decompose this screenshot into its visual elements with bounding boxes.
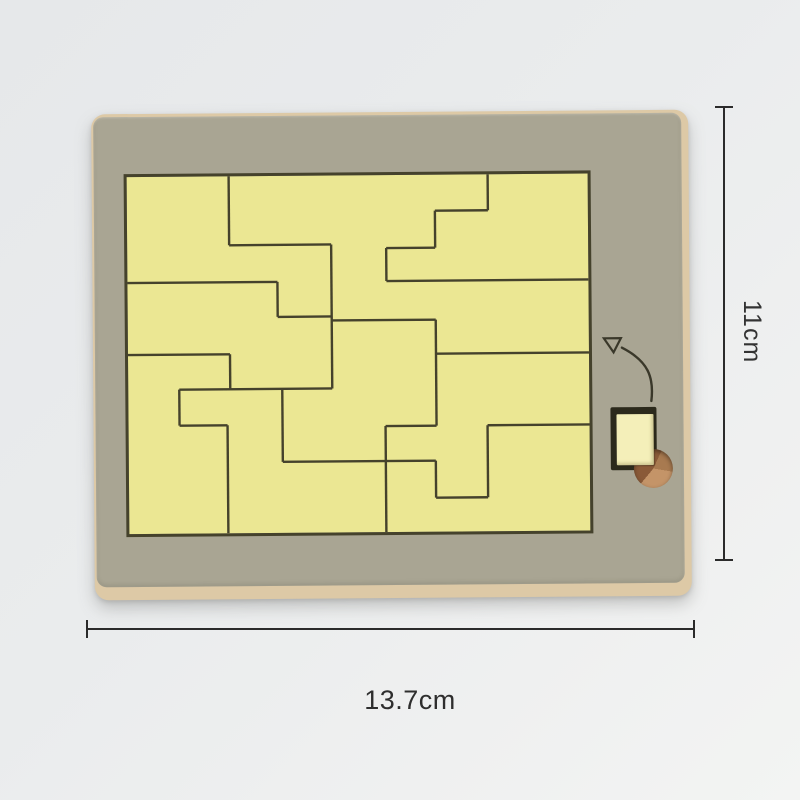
height-dimension-label: 11cm	[737, 300, 766, 390]
puzzle-cut-lines	[127, 173, 591, 534]
slot-piece	[616, 414, 653, 465]
board-frame	[93, 113, 685, 588]
curved-insert-arrow-icon	[593, 325, 666, 414]
width-dimension-line	[86, 628, 695, 630]
width-dimension-label: 13.7cm	[330, 685, 490, 716]
product-photo: 11cm 13.7cm	[0, 0, 800, 800]
puzzle-board	[91, 110, 692, 601]
height-dimension-line	[723, 106, 725, 561]
puzzle-area	[127, 173, 591, 534]
